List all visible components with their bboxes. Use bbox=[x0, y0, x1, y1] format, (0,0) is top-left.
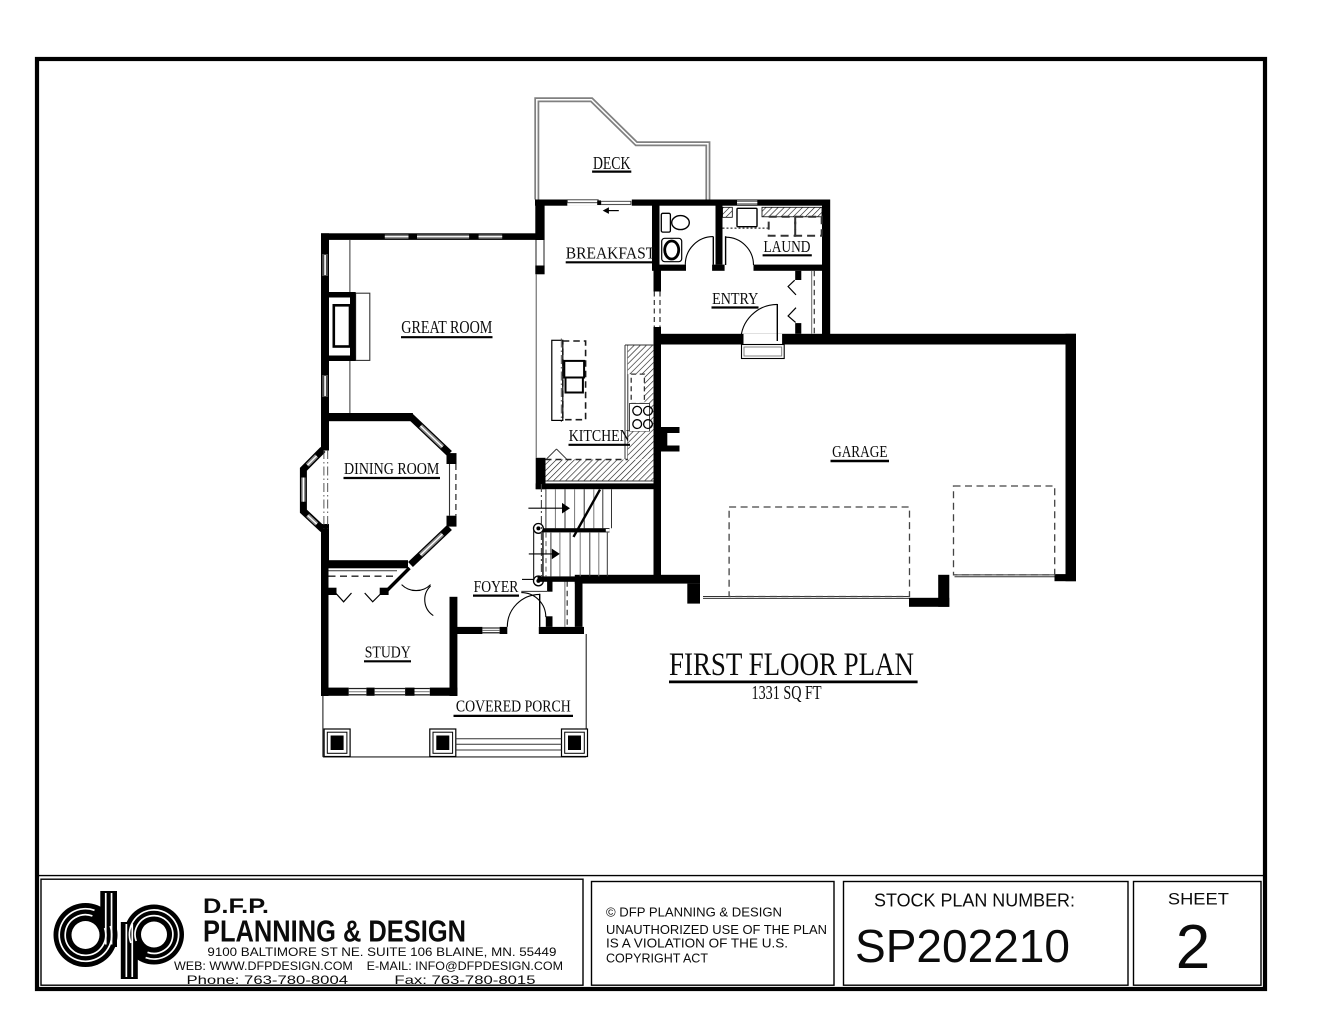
svg-text:SP202210: SP202210 bbox=[855, 920, 1070, 972]
svg-text:IS A VIOLATION OF THE U.S.: IS A VIOLATION OF THE U.S. bbox=[606, 935, 788, 950]
svg-text:ENTRY: ENTRY bbox=[712, 289, 758, 308]
svg-text:1331 SQ FT: 1331 SQ FT bbox=[752, 683, 822, 704]
svg-text:BREAKFAST: BREAKFAST bbox=[566, 244, 656, 263]
svg-text:Phone: 763-780-8004 F: Phone: 763-780-8004 Fax: 763-780-8015 bbox=[187, 973, 537, 987]
svg-text:FOYER: FOYER bbox=[474, 577, 519, 596]
svg-text:COPYRIGHT ACT: COPYRIGHT ACT bbox=[606, 951, 708, 966]
svg-text:© DFP PLANNING & DESIGN: © DFP PLANNING & DESIGN bbox=[606, 905, 782, 920]
svg-text:DINING ROOM: DINING ROOM bbox=[344, 459, 440, 478]
svg-text:SHEET: SHEET bbox=[1168, 891, 1229, 909]
svg-text:KITCHEN: KITCHEN bbox=[569, 426, 630, 445]
svg-text:COVERED PORCH: COVERED PORCH bbox=[456, 697, 571, 716]
svg-text:DECK: DECK bbox=[593, 153, 631, 173]
svg-text:STUDY: STUDY bbox=[365, 642, 411, 661]
svg-text:9100 BALTIMORE ST NE. SUITE 10: 9100 BALTIMORE ST NE. SUITE 106 BLAINE, … bbox=[207, 945, 556, 959]
svg-text:LAUND: LAUND bbox=[764, 237, 811, 256]
svg-text:WEB: WWW.DFPDESIGN.COM E-MA: WEB: WWW.DFPDESIGN.COM E-MAIL: INFO@DFPD… bbox=[174, 959, 563, 973]
svg-text:GARAGE: GARAGE bbox=[832, 442, 887, 461]
svg-text:FIRST FLOOR PLAN: FIRST FLOOR PLAN bbox=[669, 647, 914, 683]
svg-text:PLANNING & DESIGN: PLANNING & DESIGN bbox=[203, 914, 466, 949]
svg-text:2: 2 bbox=[1176, 913, 1210, 982]
svg-text:GREAT ROOM: GREAT ROOM bbox=[401, 317, 492, 337]
svg-text:STOCK PLAN NUMBER:: STOCK PLAN NUMBER: bbox=[874, 891, 1075, 911]
